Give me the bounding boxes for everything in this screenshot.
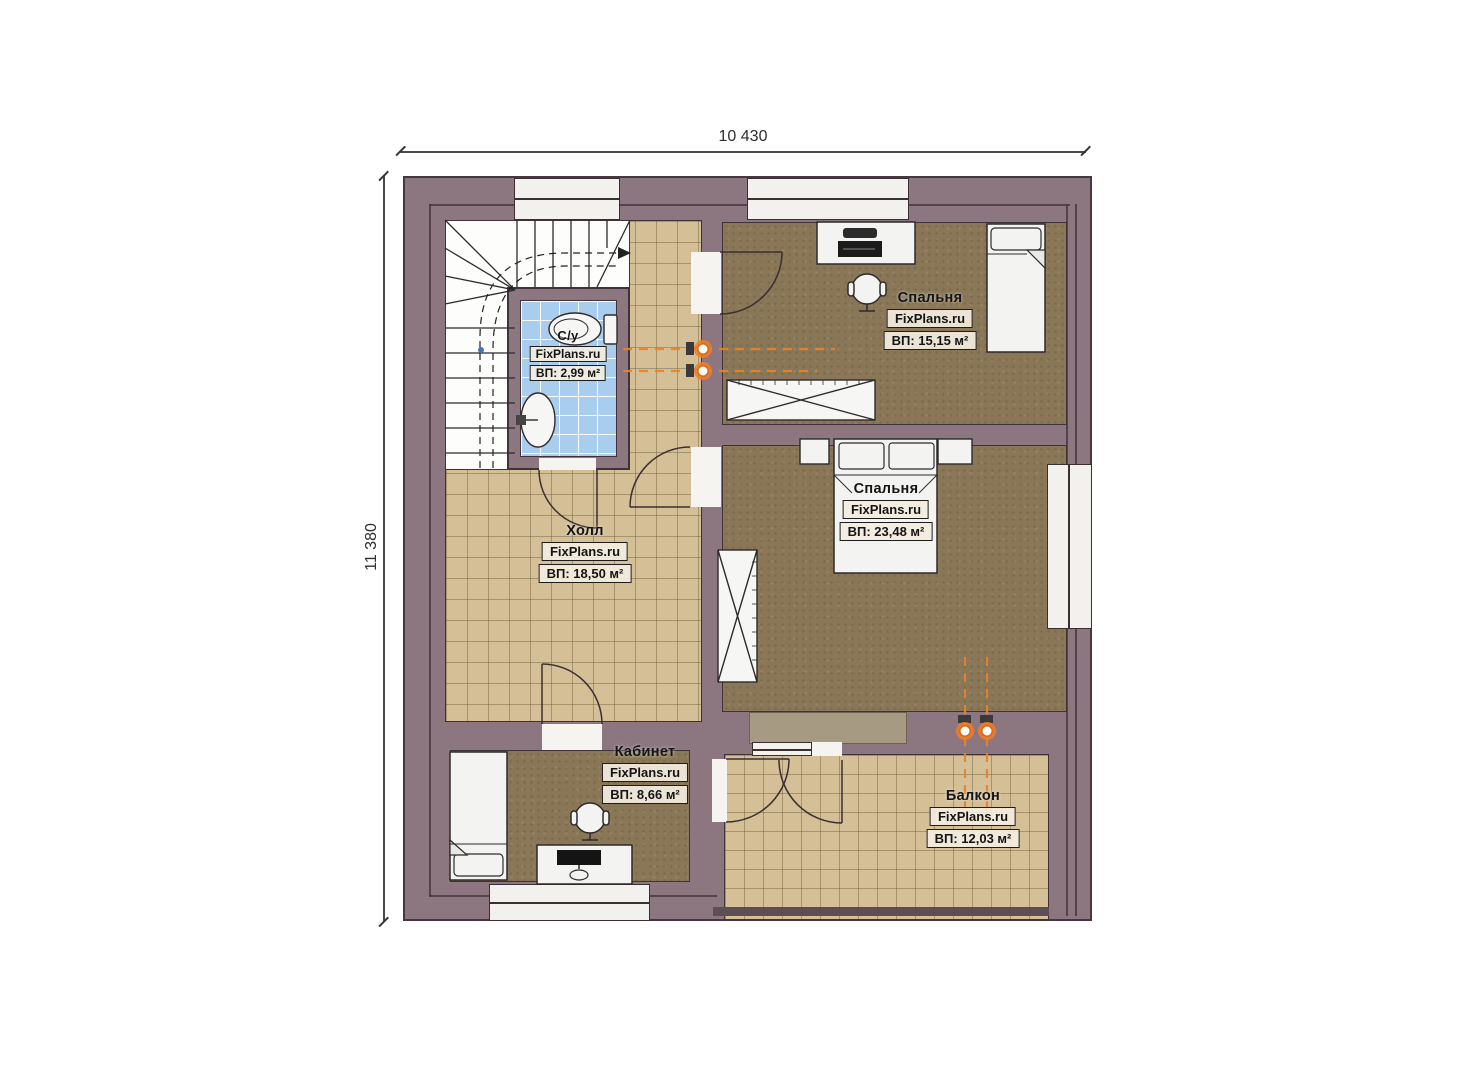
room-label-bathroom: С/у FixPlans.ru ВП: 2,99 м²: [530, 328, 607, 381]
room-label-hall: Холл FixPlans.ru ВП: 18,50 м²: [539, 523, 632, 583]
floor-plan-canvas: 10 430 11 380: [0, 0, 1473, 1080]
radiator-icon: [956, 715, 974, 740]
room-name: Балкон: [946, 788, 1000, 804]
window-mullion: [490, 902, 649, 904]
balcony-side-door-gap: [712, 759, 727, 822]
window-office-bottom: [489, 884, 650, 921]
room-name: Спальня: [854, 481, 919, 497]
balcony-threshold: [749, 712, 907, 744]
dimension-top-line: [400, 151, 1086, 153]
bedroom-top-door-gap: [691, 252, 721, 314]
radiator-icon: [978, 715, 996, 740]
dimension-top: 10 430: [400, 128, 1086, 160]
window-bedroom-top: [747, 178, 909, 220]
room-area: ВП: 18,50 м²: [539, 564, 632, 583]
bedroom-master-door-gap: [691, 447, 721, 507]
wall-edge: [429, 204, 431, 897]
room-name: Кабинет: [615, 744, 676, 760]
room-area: ВП: 15,15 м²: [884, 331, 977, 350]
room-area: ВП: 23,48 м²: [840, 522, 933, 541]
room-brand: FixPlans.ru: [887, 309, 973, 328]
dimension-left: 11 380: [358, 176, 390, 921]
room-label-balcony: Балкон FixPlans.ru ВП: 12,03 м²: [927, 788, 1020, 848]
room-name: С/у: [557, 328, 578, 343]
room-brand: FixPlans.ru: [542, 542, 628, 561]
room-brand: FixPlans.ru: [602, 763, 688, 782]
window-mullion: [753, 749, 811, 751]
window-balcony-door-side: [752, 742, 812, 756]
room-area: ВП: 12,03 м²: [927, 829, 1020, 848]
bathroom-door-gap: [539, 458, 596, 470]
balcony-door-gap: [812, 742, 842, 756]
room-brand: FixPlans.ru: [843, 500, 929, 519]
dimension-left-line: [383, 176, 385, 921]
floor-plan: Спальня FixPlans.ru ВП: 15,15 м² Спальня…: [403, 176, 1092, 921]
window-mullion: [515, 198, 619, 200]
window-mullion: [1068, 465, 1070, 628]
room-area: ВП: 8,66 м²: [602, 785, 688, 804]
room-name: Холл: [566, 523, 604, 539]
room-brand: FixPlans.ru: [930, 807, 1016, 826]
room-label-bedroom-master: Спальня FixPlans.ru ВП: 23,48 м²: [840, 481, 933, 541]
dimension-left-value: 11 380: [363, 517, 381, 577]
window-master-right: [1047, 464, 1092, 629]
dimension-top-value: 10 430: [400, 128, 1086, 146]
window-mullion: [748, 198, 908, 200]
room-area: ВП: 2,99 м²: [530, 365, 606, 381]
room-label-office: Кабинет FixPlans.ru ВП: 8,66 м²: [602, 744, 688, 804]
balcony-railing: [713, 907, 1049, 916]
room-label-bedroom-top: Спальня FixPlans.ru ВП: 15,15 м²: [884, 290, 977, 350]
window-stairs-top: [514, 178, 620, 220]
room-name: Спальня: [898, 290, 963, 306]
room-brand: FixPlans.ru: [530, 346, 607, 362]
office-door-gap: [542, 724, 602, 750]
